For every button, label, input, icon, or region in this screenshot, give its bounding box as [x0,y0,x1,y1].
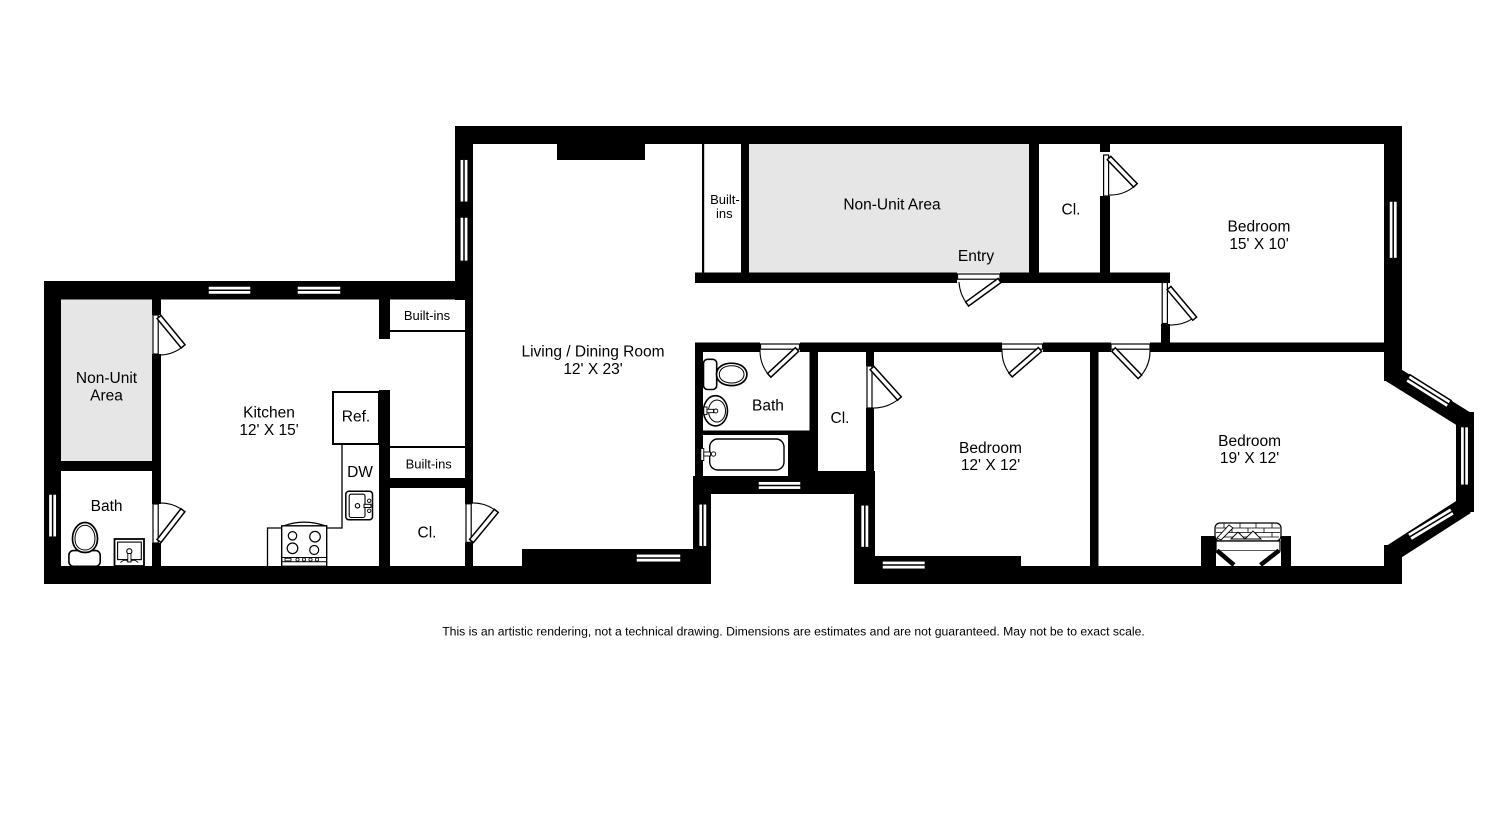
svg-text:Bedroom: Bedroom [959,440,1022,457]
svg-text:Non-Unit: Non-Unit [76,370,138,387]
svg-text:This is an artistic rendering,: This is an artistic rendering, not a tec… [442,625,1145,639]
svg-text:19' X 12': 19' X 12' [1220,450,1279,467]
svg-text:Cl.: Cl. [831,410,850,427]
svg-text:Non-Unit Area: Non-Unit Area [843,197,941,214]
svg-text:Area: Area [90,388,123,405]
svg-text:Bedroom: Bedroom [1218,433,1281,450]
svg-text:12' X 12': 12' X 12' [961,457,1020,474]
svg-text:Cl.: Cl. [418,525,437,542]
svg-text:Built-ins: Built-ins [406,457,453,472]
svg-text:Built-ins: Built-ins [404,308,451,323]
svg-text:DW: DW [347,464,373,481]
svg-text:Entry: Entry [958,248,994,265]
svg-text:ins: ins [716,206,733,221]
svg-text:Built-: Built- [710,192,740,207]
svg-text:15' X 10': 15' X 10' [1229,236,1288,253]
svg-text:12' X 23': 12' X 23' [563,361,622,378]
svg-text:Cl.: Cl. [1062,202,1081,219]
svg-text:Bath: Bath [752,398,784,415]
svg-text:Kitchen: Kitchen [243,405,295,422]
svg-text:Living / Dining Room: Living / Dining Room [521,344,664,361]
svg-text:Bath: Bath [91,498,123,515]
svg-text:Ref.: Ref. [342,409,370,426]
svg-text:Bedroom: Bedroom [1228,219,1291,236]
svg-text:12' X 15': 12' X 15' [239,422,298,439]
